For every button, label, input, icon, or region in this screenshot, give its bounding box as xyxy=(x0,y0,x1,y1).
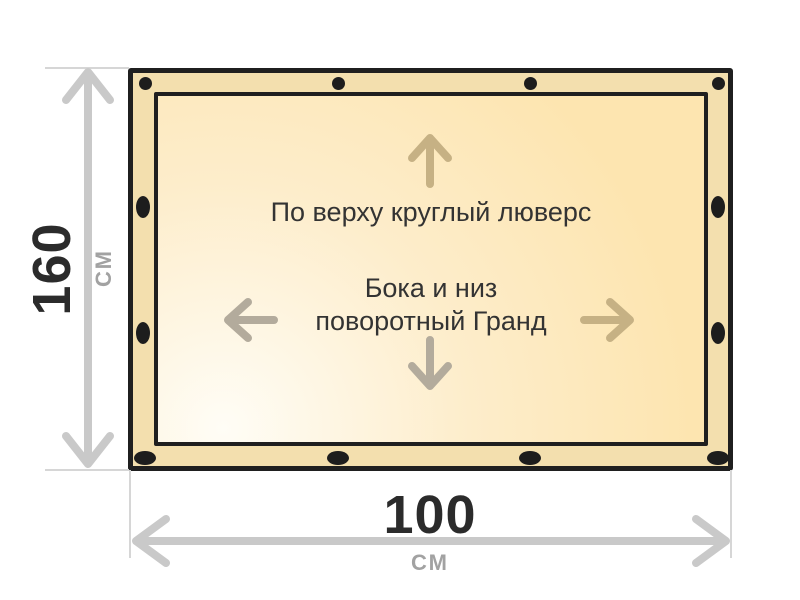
grommet-icon xyxy=(139,77,152,90)
grommet-icon xyxy=(711,196,725,218)
note-line: Бока и низ xyxy=(154,272,708,305)
arrow-down-icon xyxy=(402,335,458,393)
grommet-icon xyxy=(327,451,349,465)
grommet-icon xyxy=(136,196,150,218)
arrow-up-icon xyxy=(402,131,458,189)
grommet-icon xyxy=(134,451,156,465)
width-unit: СМ xyxy=(380,551,480,575)
top-fastening-note: По верху круглый люверс xyxy=(154,196,708,229)
grommet-icon xyxy=(712,77,725,90)
width-value: 100 xyxy=(330,487,530,543)
height-unit: СМ xyxy=(92,238,116,298)
height-value: 160 xyxy=(24,189,80,349)
banner-diagram: По верху круглый люверс Бока и низ повор… xyxy=(0,0,800,600)
grommet-icon xyxy=(524,77,537,90)
grommet-icon xyxy=(332,77,345,90)
grommet-icon xyxy=(136,322,150,344)
side-bottom-fastening-note: Бока и низ поворотный Гранд xyxy=(154,272,708,338)
note-line: поворотный Гранд xyxy=(154,305,708,338)
grommet-icon xyxy=(519,451,541,465)
grommet-icon xyxy=(711,322,725,344)
grommet-icon xyxy=(707,451,729,465)
